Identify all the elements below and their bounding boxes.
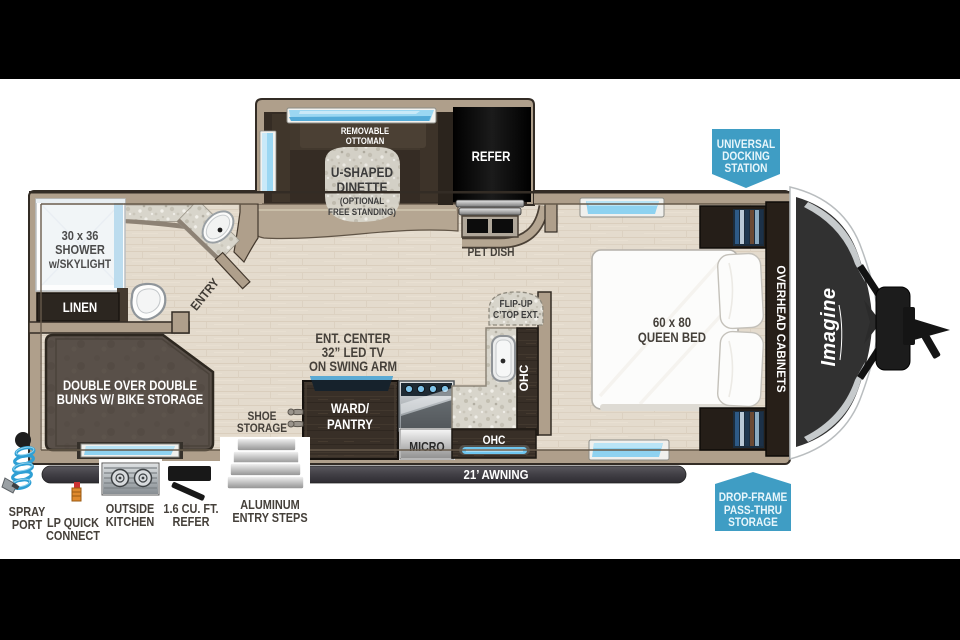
- svg-text:DROP-FRAME: DROP-FRAME: [719, 491, 788, 504]
- svg-text:ENTRY STEPS: ENTRY STEPS: [232, 510, 307, 525]
- svg-text:QUEEN BED: QUEEN BED: [638, 330, 706, 345]
- svg-text:WARD/: WARD/: [331, 401, 370, 416]
- svg-text:21’ AWNING: 21’ AWNING: [463, 467, 528, 482]
- svg-text:STORAGE: STORAGE: [237, 422, 287, 435]
- svg-text:Imagine: Imagine: [818, 287, 840, 366]
- svg-text:OVERHEAD CABINETS: OVERHEAD CABINETS: [774, 265, 786, 392]
- svg-text:C’TOP EXT.: C’TOP EXT.: [493, 309, 539, 320]
- svg-text:STORAGE: STORAGE: [728, 516, 778, 529]
- svg-text:w/SKYLIGHT: w/SKYLIGHT: [48, 258, 111, 271]
- svg-text:SHOWER: SHOWER: [55, 242, 105, 257]
- svg-text:PANTRY: PANTRY: [327, 417, 373, 432]
- svg-text:REFER: REFER: [472, 149, 511, 164]
- svg-text:DOUBLE OVER DOUBLE: DOUBLE OVER DOUBLE: [63, 378, 197, 393]
- svg-text:KITCHEN: KITCHEN: [106, 514, 155, 529]
- svg-text:UNIVERSAL: UNIVERSAL: [717, 138, 776, 151]
- svg-text:ON SWING ARM: ON SWING ARM: [309, 359, 397, 374]
- svg-text:DOCKING: DOCKING: [722, 150, 770, 163]
- svg-text:OTTOMAN: OTTOMAN: [346, 135, 384, 146]
- svg-text:FREE STANDING): FREE STANDING): [328, 206, 396, 217]
- svg-text:MICRO: MICRO: [409, 440, 444, 454]
- svg-text:PET DISH: PET DISH: [468, 246, 515, 259]
- svg-text:REFER: REFER: [173, 514, 210, 529]
- svg-text:(OPTIONAL: (OPTIONAL: [340, 195, 385, 206]
- svg-text:30 x 36: 30 x 36: [62, 228, 99, 243]
- svg-text:PORT: PORT: [12, 517, 43, 532]
- svg-text:SHOE: SHOE: [248, 410, 277, 423]
- svg-text:LINEN: LINEN: [63, 300, 97, 315]
- svg-text:ENT. CENTER: ENT. CENTER: [315, 331, 390, 346]
- svg-text:U-SHAPED: U-SHAPED: [331, 164, 393, 180]
- svg-text:PASS-THRU: PASS-THRU: [724, 504, 782, 517]
- svg-text:60 x 80: 60 x 80: [653, 315, 691, 330]
- svg-text:32” LED TV: 32” LED TV: [322, 345, 385, 360]
- svg-text:OHC: OHC: [517, 364, 531, 391]
- svg-text:FLIP-UP: FLIP-UP: [499, 298, 532, 309]
- svg-text:BUNKS W/ BIKE STORAGE: BUNKS W/ BIKE STORAGE: [57, 392, 203, 407]
- svg-text:CONNECT: CONNECT: [46, 528, 101, 543]
- svg-text:STATION: STATION: [725, 162, 768, 175]
